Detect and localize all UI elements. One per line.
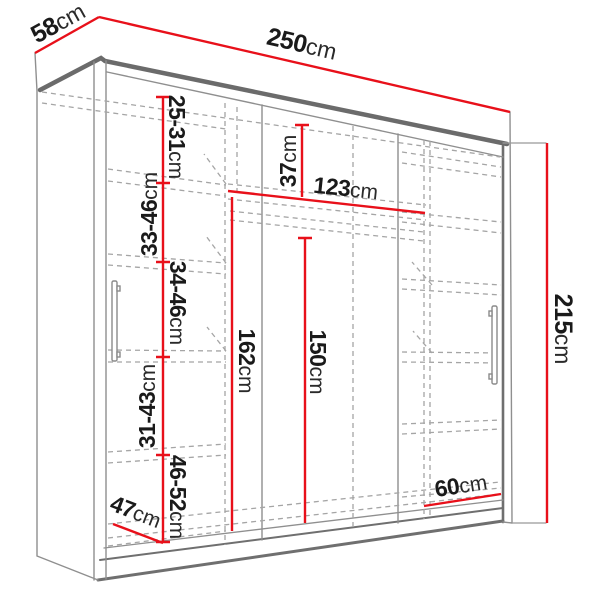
dim-label-middle-width: 123cm (312, 172, 379, 205)
technical-drawing-canvas: 58cm 250cm 215cm 25-31cm 33-46cm 34-46cm… (0, 0, 600, 600)
dim-label-depth: 58cm (26, 0, 90, 49)
dim-label-bottom-depth: 47cm (107, 490, 165, 533)
dim-label-shelf-gap-5: 46-52cm (165, 455, 191, 539)
dimension-labels: 58cm 250cm 215cm 25-31cm 33-46cm 34-46cm… (26, 0, 577, 539)
dim-label-shelf-gap-4: 31-43cm (134, 364, 160, 448)
dim-label-height: 215cm (549, 294, 577, 365)
dim-label-shelf-gap-1: 25-31cm (164, 95, 190, 179)
dim-label-shelf-gap-2: 33-46cm (136, 172, 162, 256)
bottom-edge (98, 521, 503, 580)
left-door-handle (112, 281, 120, 361)
left-side-edges (35, 53, 106, 580)
top-front-edge (40, 58, 507, 144)
right-side-edges (503, 112, 512, 523)
height-extension-lines (503, 143, 546, 523)
dim-label-hanging-right: 150cm (305, 330, 331, 395)
dim-label-top-shelf: 37cm (275, 135, 301, 188)
right-door-handle (489, 306, 497, 384)
dim-label-hanging-left: 162cm (234, 329, 260, 394)
wardrobe-dimension-diagram: 58cm 250cm 215cm 25-31cm 33-46cm 34-46cm… (0, 0, 600, 600)
dim-label-width: 250cm (264, 23, 339, 66)
hidden-verticals (225, 103, 430, 545)
dim-label-shelf-gap-3: 34-46cm (165, 261, 191, 345)
interior-top-lines (42, 92, 500, 157)
dimension-lines (35, 17, 547, 543)
